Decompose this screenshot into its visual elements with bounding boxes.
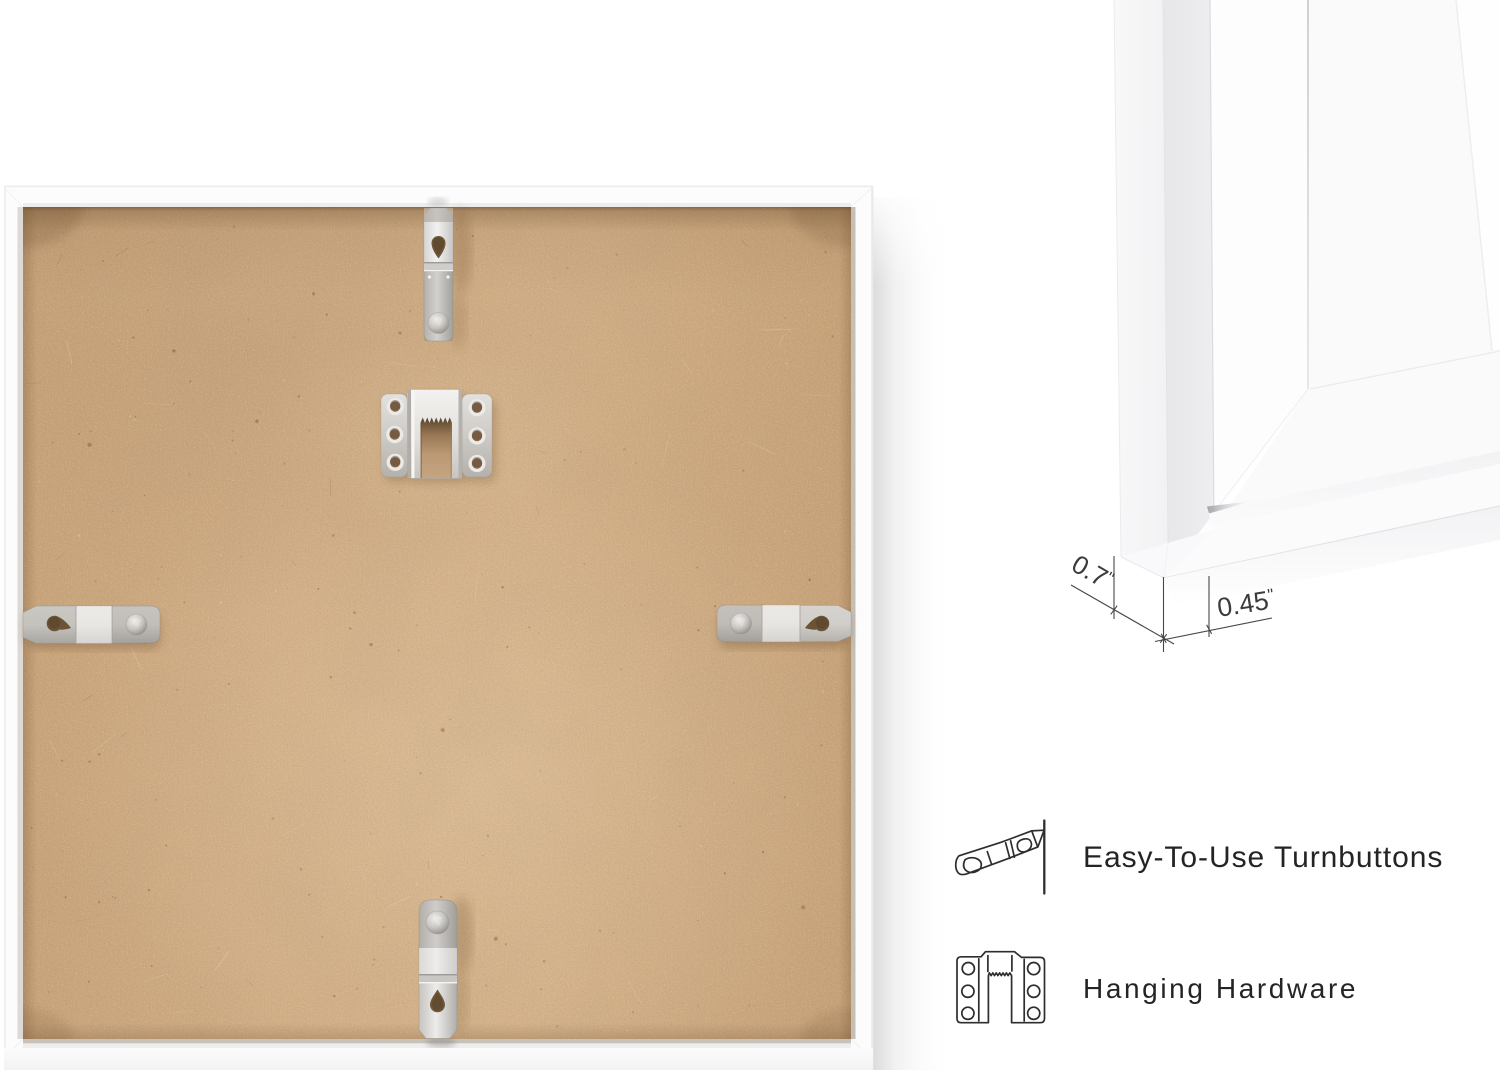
svg-text:Easy-To-Use Turnbuttons: Easy-To-Use Turnbuttons [1083,841,1443,874]
svg-text:0.7": 0.7" [1067,549,1119,596]
svg-text:Hanging Hardware: Hanging Hardware [1083,973,1358,1004]
